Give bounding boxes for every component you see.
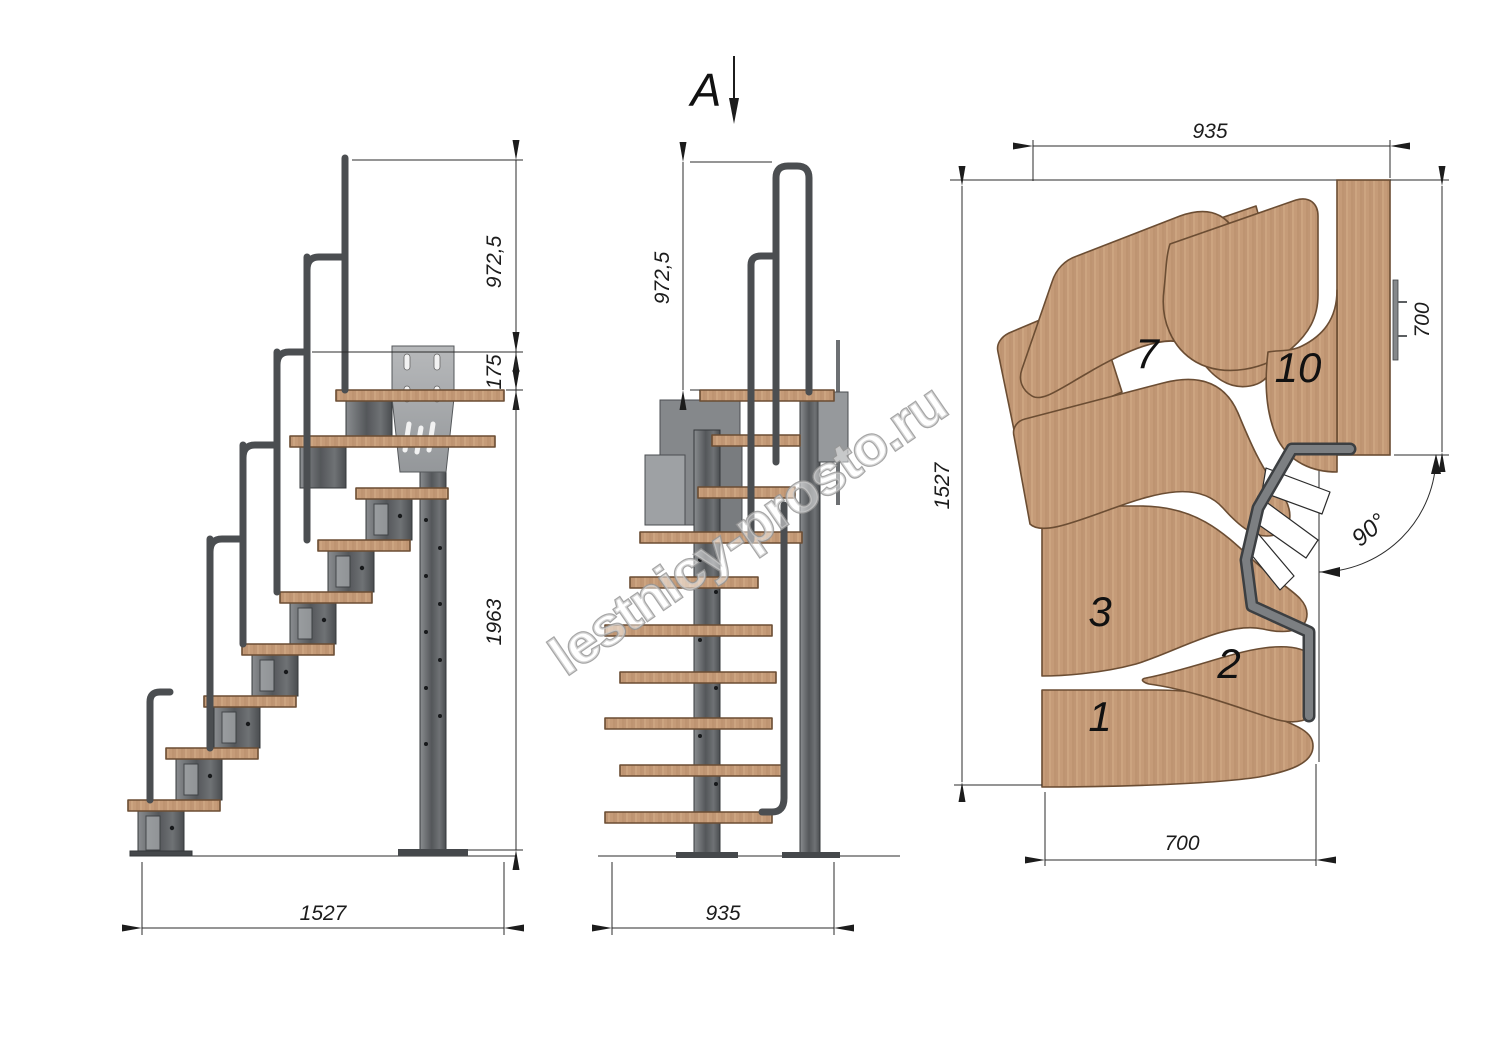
dim-side-height-to-landing: 1963 [483,598,506,645]
side-column-base [398,849,468,856]
dim-side-run-length: 1527 [300,902,348,925]
dim-plan-top-width: 935 [1192,120,1227,143]
section-arrow: A [688,56,739,124]
dim-side-rail-offset: 175 [483,354,506,389]
staircase-drawing: 972,5 175 1963 1527 A [0,0,1500,1061]
tread-label-10: 10 [1275,344,1322,391]
tread-label-1: 1 [1088,693,1111,740]
dim-front-rail-height: 972,5 [651,251,674,304]
technical-drawing-page: 972,5 175 1963 1527 A [0,0,1500,1061]
plan-wall-bracket [1393,280,1407,360]
front-column-base [676,852,738,858]
front-right-column-base [782,852,840,858]
front-module-plate [645,455,685,525]
tread-label-2: 2 [1216,640,1240,687]
section-arrowhead-icon [729,98,739,124]
dim-plan-total-depth: 1527 [931,461,954,509]
tread-label-7: 7 [1135,330,1160,377]
dim-plan-landing-depth: 700 [1411,302,1434,337]
section-label: A [688,64,722,116]
plan-landing [1337,180,1390,455]
dim-plan-turn-angle: 90° [1347,508,1392,552]
dim-side-rail-height: 972,5 [483,235,506,288]
side-view: 972,5 175 1963 1527 [128,158,523,935]
side-spine-modules [130,401,412,856]
plan-view: 1 2 3 7 10 935 700 1527 700 9 [931,120,1449,866]
dim-front-width: 935 [705,902,740,925]
side-mounting-plate [392,346,454,472]
dim-plan-bottom-width: 700 [1164,832,1199,855]
side-support-column [420,472,446,852]
tread-label-3: 3 [1088,588,1111,635]
